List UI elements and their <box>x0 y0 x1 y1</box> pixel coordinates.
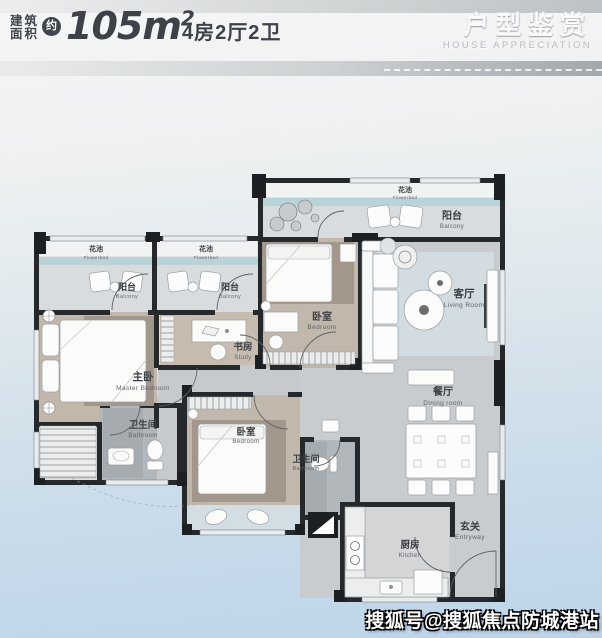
label-bathroom-1-en: Bathroom <box>128 433 157 439</box>
label-balcony-left1-cn: 阳台 <box>118 281 136 292</box>
watermark: 搜狐号@搜狐焦点防城港站 <box>365 606 599 633</box>
label-bedroom-top-en: Bedroom <box>307 324 336 331</box>
label-flowerbed-left1-cn: 花池 <box>89 244 103 253</box>
label-bathroom-1-cn: 卫生间 <box>129 419 158 431</box>
entry-cabinet <box>488 452 498 494</box>
label-bedroom-top-cn: 卧室 <box>312 310 332 323</box>
label-dining-room-cn: 餐厅 <box>432 385 453 398</box>
label-flowerbed-left1-en: Flowerbed <box>84 255 109 260</box>
furniture-dining-room <box>406 406 476 495</box>
label-entryway-en: Entryway <box>455 534 485 541</box>
label-study-en: Study <box>234 355 251 361</box>
label-balcony-top-en: Balcony <box>440 224 464 230</box>
label-bathroom-2-cn: 卫生间 <box>292 453 319 464</box>
label-master-bedroom-en: Master Bedroom <box>116 385 170 392</box>
label-entryway-cn: 玄关 <box>460 520 480 533</box>
label-flowerbed-top-cn: 花池 <box>398 185 412 194</box>
label-bedroom-2-en: Bedroom <box>232 439 259 445</box>
label-flowerbed-left2-en: Flowerbed <box>194 255 219 260</box>
label-balcony-left1-en: Balcony <box>116 294 138 300</box>
label-flowerbed-left2-cn: 花池 <box>199 244 213 253</box>
floorplan-drawing: 花池 Flowerbed 花池 Flowerbed 花池 Flowerbed 阳… <box>0 0 602 638</box>
label-kitchen-cn: 厨房 <box>400 539 419 551</box>
label-bathroom-2-en: Bathroom <box>292 466 319 472</box>
label-dining-room-en: Dining room <box>423 400 462 407</box>
label-study-cn: 书房 <box>233 341 252 353</box>
label-master-bedroom-cn: 主卧 <box>133 370 154 383</box>
label-flowerbed-top-en: Flowerbed <box>393 195 418 200</box>
label-kitchen-en: Kitchen <box>399 553 422 559</box>
page: 建筑 面积 约 105m2 4房2厅2卫 户型鉴赏 HOUSE APPRECIA… <box>0 0 602 638</box>
label-balcony-left2-cn: 阳台 <box>221 281 239 292</box>
label-balcony-left2-en: Balcony <box>219 294 241 300</box>
label-living-room-en: Living Room <box>444 302 485 309</box>
label-balcony-top-cn: 阳台 <box>442 209 462 222</box>
label-living-room-cn: 客厅 <box>453 287 475 300</box>
label-bedroom-2-cn: 卧室 <box>236 426 256 438</box>
